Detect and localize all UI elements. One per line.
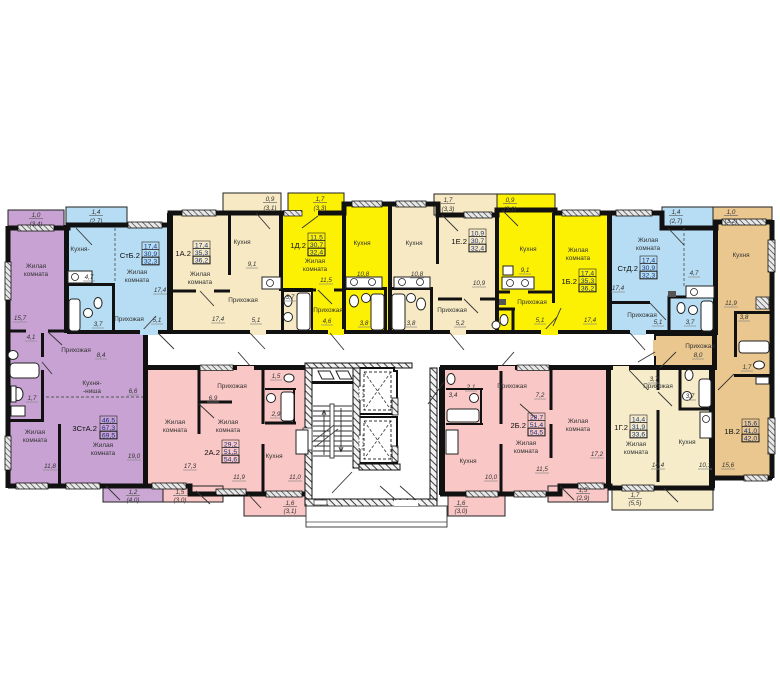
svg-text:3,4: 3,4 [449,392,458,399]
svg-text:46,5: 46,5 [102,417,115,424]
svg-text:32,3: 32,3 [642,273,655,280]
svg-text:28,7: 28,7 [530,414,543,421]
svg-text:комната: комната [23,437,48,444]
svg-text:Прихожая: Прихожая [437,307,467,314]
svg-text:(2,7): (2,7) [90,218,103,225]
svg-text:Прихожая: Прихожая [61,347,91,354]
svg-text:5,1: 5,1 [536,317,545,324]
svg-text:11,8: 11,8 [44,463,56,470]
svg-text:Прихожая: Прихожая [643,383,673,390]
svg-text:(5,5): (5,5) [629,500,642,507]
svg-text:1,0: 1,0 [727,209,736,216]
svg-text:8,0: 8,0 [694,352,703,359]
svg-text:комната: комната [24,271,49,278]
svg-text:3,7: 3,7 [686,393,695,400]
svg-text:10,8: 10,8 [357,271,370,278]
svg-text:2,9: 2,9 [271,411,281,418]
svg-text:3,8: 3,8 [740,314,749,321]
svg-text:Кухня: Кухня [732,252,750,259]
svg-text:(3,1): (3,1) [284,508,297,515]
svg-text:32,4: 32,4 [471,246,484,253]
svg-text:комната: комната [566,255,591,262]
svg-text:10,0: 10,0 [485,474,498,481]
svg-text:15,7: 15,7 [14,315,27,322]
svg-text:1Г.2: 1Г.2 [614,423,628,432]
svg-text:Кухня: Кухня [353,240,371,247]
svg-text:Прихожая: Прихожая [685,343,715,350]
svg-text:комната: комната [91,450,116,457]
svg-text:15,6: 15,6 [744,420,757,427]
svg-text:4,1: 4,1 [27,334,36,341]
svg-text:36,2: 36,2 [581,286,594,293]
svg-text:17,2: 17,2 [591,451,604,458]
svg-text:комната: комната [216,427,241,434]
svg-text:Жилая: Жилая [26,263,47,270]
svg-text:32,3: 32,3 [144,259,157,266]
svg-text:5,1: 5,1 [654,319,663,326]
svg-text:комната: комната [125,277,150,284]
svg-text:0,9: 0,9 [506,197,515,204]
svg-text:6,9: 6,9 [209,395,218,402]
svg-text:11,0: 11,0 [289,474,301,481]
svg-text:30,9: 30,9 [144,251,157,258]
svg-text:1Б.2: 1Б.2 [561,277,577,286]
svg-text:Жилая: Жилая [638,237,659,244]
svg-text:10,9: 10,9 [471,230,484,237]
svg-text:1,6: 1,6 [457,500,466,507]
svg-text:14,4: 14,4 [632,416,645,423]
svg-text:Жилая: Жилая [626,441,647,448]
svg-text:(3,3): (3,3) [314,205,327,212]
svg-text:(3,0): (3,0) [174,497,187,504]
svg-text:комната: комната [188,279,213,286]
svg-text:(4,0): (4,0) [127,497,140,504]
svg-text:1В.2: 1В.2 [724,427,740,436]
svg-text:17,3: 17,3 [184,463,197,470]
svg-text:(3,0): (3,0) [455,508,468,515]
svg-text:1,7: 1,7 [316,196,325,203]
svg-text:Жилая: Жилая [127,269,148,276]
svg-text:Кухня: Кухня [519,246,537,253]
svg-text:1,4: 1,4 [672,209,681,216]
svg-text:Прихожая: Прихожая [217,383,247,390]
svg-text:Кухня: Кухня [459,458,477,465]
svg-text:Жилая: Жилая [305,258,326,265]
svg-text:4,7: 4,7 [690,270,699,277]
svg-text:1А.2: 1А.2 [175,249,191,258]
svg-text:4,7: 4,7 [85,274,94,281]
svg-text:36,2: 36,2 [195,258,208,265]
svg-text:1,0: 1,0 [32,212,41,219]
svg-text:10,1: 10,1 [699,462,711,469]
svg-text:30,7: 30,7 [471,238,484,245]
svg-text:19,0: 19,0 [128,453,141,460]
svg-text:35,3: 35,3 [581,278,594,285]
svg-text:(3,1): (3,1) [504,206,517,213]
svg-text:1,5: 1,5 [272,373,281,380]
svg-text:17,4: 17,4 [144,243,157,250]
svg-text:Жилая: Жилая [218,419,239,426]
svg-text:35,3: 35,3 [195,250,208,257]
svg-text:10,9: 10,9 [473,280,486,287]
svg-text:Прихожая: Прихожая [114,316,144,323]
svg-text:(3,4): (3,4) [30,221,43,228]
svg-text:1,7: 1,7 [444,197,453,204]
svg-text:Кухня: Кухня [265,453,283,460]
svg-text:69,5: 69,5 [102,433,115,440]
svg-text:42,0: 42,0 [744,436,757,443]
svg-text:3,8: 3,8 [407,320,416,327]
svg-text:Жилая: Жилая [93,442,114,449]
svg-text:комната: комната [624,449,649,456]
svg-text:(3,1): (3,1) [264,205,277,212]
svg-text:54,6: 54,6 [224,457,237,464]
svg-text:3,7: 3,7 [94,321,103,328]
svg-text:(3,3): (3,3) [442,206,455,213]
svg-text:6,6: 6,6 [129,388,138,395]
svg-text:комната: комната [636,245,661,252]
svg-text:комната: комната [163,427,188,434]
svg-text:11,9: 11,9 [233,474,245,481]
svg-text:15,6: 15,6 [722,462,735,469]
svg-text:2А.2: 2А.2 [204,448,220,457]
svg-text:1,7: 1,7 [28,395,37,402]
svg-text:(2,7): (2,7) [670,218,683,225]
svg-text:Кухня: Кухня [678,439,696,446]
svg-text:31,9: 31,9 [632,424,645,431]
svg-text:СтБ.2: СтБ.2 [120,251,140,260]
svg-text:33,6: 33,6 [632,432,645,439]
svg-text:5,1: 5,1 [252,317,261,324]
svg-text:Прихожая: Прихожая [313,307,343,314]
svg-text:Жилая: Жилая [516,440,537,447]
svg-text:комната: комната [566,426,591,433]
svg-text:1,7: 1,7 [743,364,752,371]
svg-text:67,3: 67,3 [102,425,115,432]
svg-text:Жилая: Жилая [568,418,589,425]
svg-text:Прихожая: Прихожая [228,297,258,304]
svg-text:8,4: 8,4 [97,352,106,359]
svg-text:17,4: 17,4 [584,317,597,324]
svg-text:Кухня: Кухня [405,240,423,247]
svg-text:9,1: 9,1 [248,261,257,268]
svg-text:(2,9): (2,9) [577,495,590,502]
svg-text:54,5: 54,5 [530,430,543,437]
svg-text:0,9: 0,9 [266,196,275,203]
svg-text:СтД.2: СтД.2 [618,264,638,273]
svg-text:11,5: 11,5 [320,277,332,284]
svg-text:51,5: 51,5 [224,449,237,456]
svg-text:14,4: 14,4 [652,462,665,469]
svg-text:Жилая: Жилая [568,247,589,254]
svg-text:Кухня: Кухня [233,239,251,246]
svg-text:3,7: 3,7 [686,319,695,326]
svg-text:Прихожая: Прихожая [627,312,657,319]
svg-text:11,5: 11,5 [536,466,548,473]
svg-text:17,4: 17,4 [612,285,625,292]
svg-text:1Д.2: 1Д.2 [290,241,306,250]
svg-text:1Е.2: 1Е.2 [451,237,467,246]
svg-text:17,4: 17,4 [581,270,594,277]
svg-text:3,8: 3,8 [360,320,369,327]
svg-text:1,4: 1,4 [92,209,101,216]
svg-text:30,9: 30,9 [642,265,655,272]
svg-text:комната: комната [514,448,539,455]
svg-text:41,0: 41,0 [744,428,757,435]
svg-text:2,1: 2,1 [466,384,476,391]
svg-text:1,6: 1,6 [286,500,295,507]
svg-text:11,5: 11,5 [310,234,323,241]
svg-text:1,5: 1,5 [579,487,588,494]
svg-text:5,2: 5,2 [456,320,465,327]
svg-text:1,7: 1,7 [631,492,640,499]
svg-text:51,4: 51,4 [530,422,543,429]
svg-text:10,8: 10,8 [411,271,424,278]
svg-text:комната: комната [303,266,328,273]
svg-text:Жилая: Жилая [25,429,46,436]
svg-text:29,2: 29,2 [224,441,237,448]
svg-text:Прихожая: Прихожая [517,299,547,306]
svg-text:17,4: 17,4 [642,257,655,264]
svg-text:9,1: 9,1 [521,267,530,274]
svg-text:2Б.2: 2Б.2 [510,421,526,430]
svg-text:3,7: 3,7 [650,376,659,383]
svg-text:17,4: 17,4 [195,242,208,249]
svg-text:30,7: 30,7 [310,242,323,249]
svg-text:17,4: 17,4 [154,287,167,294]
svg-text:Кухня-: Кухня- [70,246,89,253]
svg-text:-ниша: -ниша [83,388,101,395]
svg-text:11,9: 11,9 [725,300,737,307]
svg-text:Прихожая: Прихожая [497,383,527,390]
svg-text:5,1: 5,1 [153,317,162,324]
svg-text:17,4: 17,4 [212,316,225,323]
svg-text:3,7: 3,7 [286,294,295,301]
svg-text:Жилая: Жилая [190,271,211,278]
svg-text:(3,2): (3,2) [725,218,738,225]
svg-text:1,2: 1,2 [129,489,138,496]
svg-text:7,2: 7,2 [536,392,545,399]
svg-text:4,6: 4,6 [323,318,332,325]
svg-text:3СтА.2: 3СтА.2 [72,424,97,433]
svg-text:Кухня-: Кухня- [82,380,101,387]
svg-text:Жилая: Жилая [165,419,186,426]
svg-text:32,4: 32,4 [310,250,323,257]
svg-text:1,5: 1,5 [176,489,185,496]
